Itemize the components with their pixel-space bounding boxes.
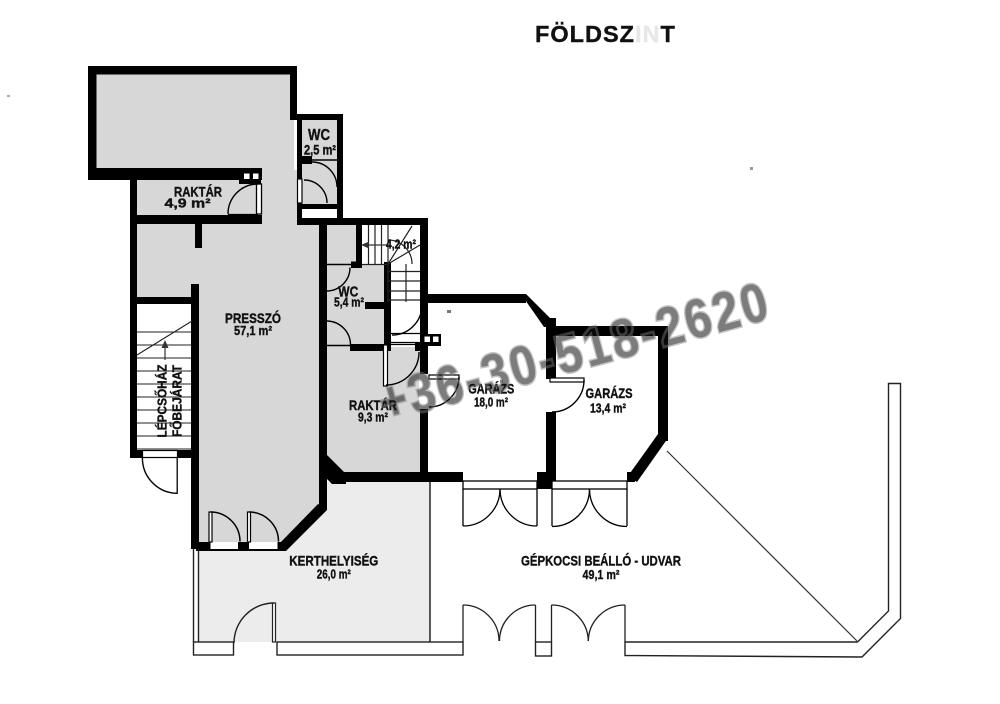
svg-text:4,9 m²: 4,9 m² <box>165 196 212 211</box>
svg-text:FŐBEJÁRAT: FŐBEJÁRAT <box>170 365 185 437</box>
svg-text:GÉPKOCSI BEÁLLÓ - UDVAR: GÉPKOCSI BEÁLLÓ - UDVAR <box>521 552 681 569</box>
svg-text:LÉPCSŐHÁZ: LÉPCSŐHÁZ <box>155 364 170 437</box>
svg-text:WC: WC <box>308 127 330 144</box>
svg-text:2,5 m²: 2,5 m² <box>304 143 336 158</box>
svg-text:5,4 m²: 5,4 m² <box>334 295 365 310</box>
svg-text:49,1 m²: 49,1 m² <box>583 567 621 582</box>
svg-text:26,0 m²: 26,0 m² <box>317 567 352 582</box>
svg-text:FÖLDSZINT: FÖLDSZINT <box>535 21 676 47</box>
svg-text:13,4 m²: 13,4 m² <box>590 401 627 416</box>
svg-text:4,2 m²: 4,2 m² <box>386 237 417 252</box>
svg-text:57,1 m²: 57,1 m² <box>234 324 272 338</box>
svg-text:GARÁZS: GARÁZS <box>586 386 633 401</box>
